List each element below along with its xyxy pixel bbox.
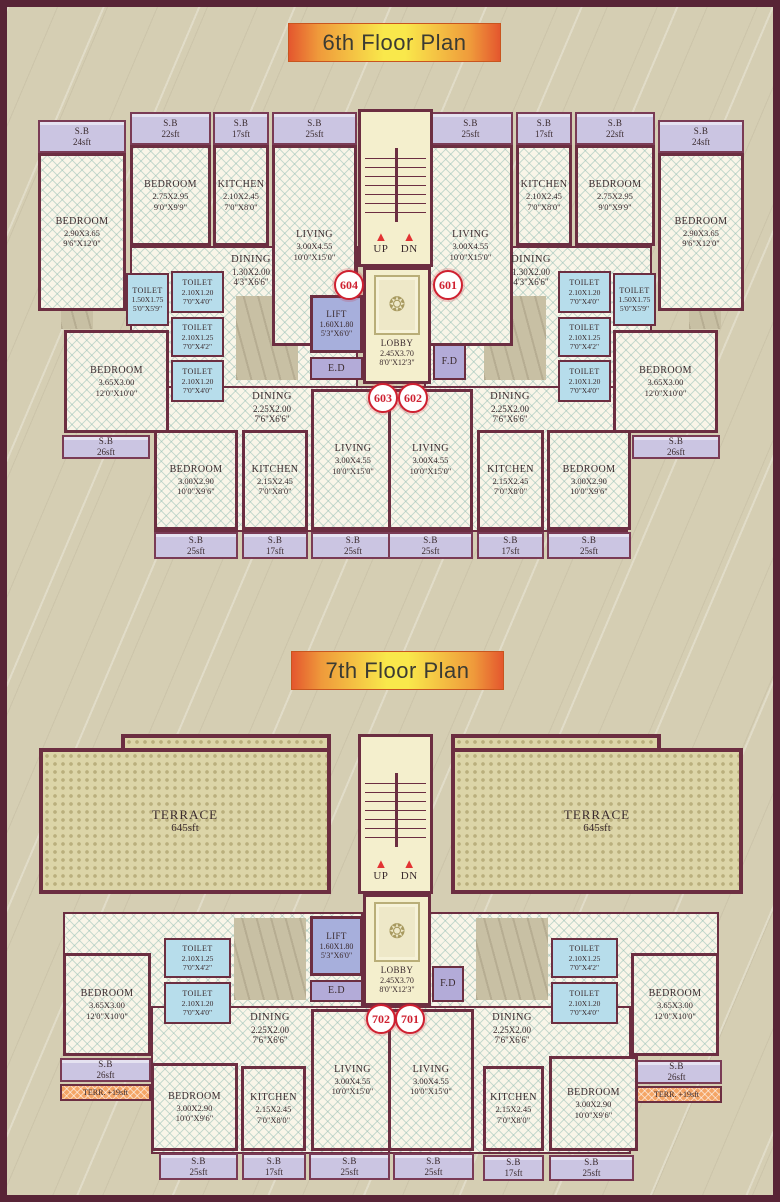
- label-25sft: 25sft: [425, 1167, 443, 1178]
- label-7-6-x6-6: 7'6"X6'6": [494, 1035, 529, 1046]
- label-toilet: TOILET: [569, 944, 599, 954]
- label-3-65x3-00: 3.65X3.00: [89, 1000, 125, 1010]
- label-living: LIVING: [412, 443, 449, 455]
- label-9-0-x9-9: 9'0"X9'9": [154, 202, 187, 212]
- label-7-0-x8-0: 7'0"X8'0": [258, 486, 291, 496]
- sb-s-b: S.B24sft: [38, 120, 126, 153]
- txt-dining: DINING2.25X2.007'6"X6'6": [230, 1006, 310, 1052]
- label-bedroom: BEDROOM: [567, 1087, 620, 1099]
- sb-s-b: S.B26sft: [62, 435, 150, 459]
- label-2-10x1-20: 2.10X1.20: [569, 377, 601, 386]
- label-s-b: S.B: [189, 535, 203, 546]
- label-terr-19sft: TERR. +19sft: [83, 1088, 128, 1098]
- room-bedroom: BEDROOM2.75X2.959'0"X9'9": [575, 145, 655, 246]
- label-toilet: TOILET: [132, 286, 162, 296]
- label-25sft: 25sft: [341, 1167, 359, 1178]
- label-s-b: S.B: [582, 535, 596, 546]
- label-25sft: 25sft: [306, 129, 324, 140]
- label-toilet: TOILET: [182, 278, 212, 288]
- label-bedroom: BEDROOM: [589, 179, 642, 191]
- label-10-0-x9-6: 10'0"X9'6": [570, 486, 607, 496]
- label-7-0-x8-0: 7'0"X8'0": [497, 1115, 530, 1125]
- label-12-0-x10-0: 12'0"X10'0": [96, 388, 138, 398]
- label-7-0-x4-2: 7'0"X4'2": [570, 342, 599, 351]
- label-2-25x2-00: 2.25X2.00: [253, 404, 291, 415]
- label-10-0-x9-6: 10'0"X9'6": [575, 1110, 612, 1120]
- label-25sft: 25sft: [422, 546, 440, 557]
- label-26sft: 26sft: [97, 447, 115, 458]
- stair-dn-label: DN: [401, 870, 418, 883]
- label-17sft: 17sft: [502, 546, 520, 557]
- label-2-25x2-00: 2.25X2.00: [491, 404, 529, 415]
- room-bedroom: BEDROOM3.65X3.0012'0"X10'0": [63, 953, 151, 1056]
- floor-plan-sheet: { "colors":{ "wall":"#6c2e41","backgroun…: [0, 0, 780, 1202]
- label-10-0-x15-0: 10'0"X15'0": [332, 1086, 374, 1096]
- label-17sft: 17sft: [535, 129, 553, 140]
- label-dining: DINING: [490, 391, 530, 404]
- sb-s-b: S.B22sft: [130, 112, 211, 145]
- toilet-toilet: TOILET1.50X1.755'0"X5'9": [126, 273, 169, 326]
- label-10-0-x15-0: 10'0"X15'0": [294, 252, 336, 262]
- room-bedroom: BEDROOM3.00X2.9010'0"X9'6": [547, 430, 631, 530]
- lift-lift: LIFT1.60X1.805'3"X6'0": [310, 295, 363, 353]
- label-e-d: E.D: [328, 363, 345, 375]
- label-9-6-x12-0: 9'6"X12'0": [63, 238, 100, 248]
- sb-s-b: S.B17sft: [516, 112, 572, 145]
- label-living: LIVING: [335, 443, 372, 455]
- sb-s-b: S.B25sft: [388, 532, 473, 559]
- label-s-b: S.B: [99, 436, 113, 447]
- label-s-b: S.B: [608, 118, 622, 129]
- label-22sft: 22sft: [162, 129, 180, 140]
- label-1-50x1-75: 1.50X1.75: [619, 295, 651, 304]
- room-kitchen: KITCHEN2.15X2.457'0"X8'0": [242, 430, 308, 530]
- lobby-rug: ❂: [374, 275, 420, 335]
- medallion-icon: ❂: [389, 922, 406, 942]
- label-2-15x2-45: 2.15X2.45: [496, 1104, 532, 1114]
- label-24sft: 24sft: [73, 137, 91, 148]
- label-3-00x4-55: 3.00X4.55: [297, 241, 333, 251]
- label-toilet: TOILET: [182, 367, 212, 377]
- label-7-6-x6-6: 7'6"X6'6": [254, 414, 289, 425]
- ed-e-d: E.D: [310, 980, 363, 1002]
- sb-s-b: S.B17sft: [477, 532, 544, 559]
- label-2-10x2-45: 2.10X2.45: [223, 191, 259, 201]
- label-s-b: S.B: [163, 118, 177, 129]
- label-10-0-x15-0: 10'0"X15'0": [410, 1086, 452, 1096]
- unit-number-604: 604: [334, 270, 364, 300]
- label-bedroom: BEDROOM: [563, 464, 616, 476]
- label-7-0-x4-2: 7'0"X4'2": [183, 963, 212, 972]
- toilet-toilet: TOILET2.10X1.207'0"X4'0": [551, 982, 618, 1024]
- label-3-00x2-90: 3.00X2.90: [178, 476, 214, 486]
- label-s-b: S.B: [669, 1061, 683, 1072]
- label-terrace: TERRACE: [564, 807, 630, 823]
- label-7-0-x4-0: 7'0"X4'0": [570, 386, 599, 395]
- label-s-b: S.B: [669, 436, 683, 447]
- toilet-toilet: TOILET2.10X1.207'0"X4'0": [164, 982, 231, 1024]
- label-5-0-x5-9: 5'0"X5'9": [133, 304, 162, 313]
- passage: [476, 918, 548, 1000]
- room-bedroom: BEDROOM3.65X3.0012'0"X10'0": [613, 330, 718, 433]
- room-kitchen: KITCHEN2.15X2.457'0"X8'0": [241, 1066, 306, 1151]
- room-kitchen: KITCHEN2.10X2.457'0"X8'0": [516, 145, 572, 246]
- stair-dn-label: DN: [401, 243, 418, 256]
- label-26sft: 26sft: [668, 1072, 686, 1083]
- label-3-00x2-90: 3.00X2.90: [571, 476, 607, 486]
- label-3-00x4-55: 3.00X4.55: [335, 455, 371, 465]
- label-dining: DINING: [511, 254, 551, 267]
- label-10-0-x15-0: 10'0"X15'0": [332, 466, 374, 476]
- label-lobby: LOBBY: [381, 965, 414, 976]
- sb-s-b: S.B25sft: [547, 532, 631, 559]
- toilet-toilet: TOILET2.10X1.207'0"X4'0": [558, 271, 611, 313]
- toilet-toilet: TOILET2.10X1.257'0"X4'2": [164, 938, 231, 978]
- floor7-title-banner: 7th Floor Plan: [291, 651, 504, 690]
- label-s-b: S.B: [346, 535, 360, 546]
- label-3-65x3-00: 3.65X3.00: [657, 1000, 693, 1010]
- label-7-0-x8-0: 7'0"X8'0": [527, 202, 560, 212]
- toilet-toilet: TOILET2.10X1.257'0"X4'2": [551, 938, 618, 978]
- unit-number-701: 701: [395, 1004, 425, 1034]
- label-bedroom: BEDROOM: [675, 216, 728, 228]
- label-3-00x4-55: 3.00X4.55: [413, 455, 449, 465]
- sb-s-b: S.B26sft: [60, 1058, 151, 1082]
- label-toilet: TOILET: [182, 323, 212, 333]
- label-living: LIVING: [296, 229, 333, 241]
- label-7-0-x4-0: 7'0"X4'0": [570, 1008, 599, 1017]
- label-3-00x4-55: 3.00X4.55: [335, 1076, 371, 1086]
- label-bedroom: BEDROOM: [56, 216, 109, 228]
- label-26sft: 26sft: [667, 447, 685, 458]
- label-7-0-x4-0: 7'0"X4'0": [570, 297, 599, 306]
- sb-s-b: S.B25sft: [272, 112, 357, 145]
- label-s-b: S.B: [191, 1156, 205, 1167]
- stair-up-label: UP: [373, 870, 388, 883]
- toilet-toilet: TOILET2.10X1.257'0"X4'2": [171, 317, 224, 357]
- label-1-30x2-00: 1.30X2.00: [232, 267, 270, 278]
- lobby-lobby: ❂LOBBY2.45X3.708'0"X12'3": [363, 894, 431, 1006]
- label-toilet: TOILET: [619, 286, 649, 296]
- label-toilet: TOILET: [569, 989, 599, 999]
- label-22sft: 22sft: [606, 129, 624, 140]
- stair-dn-indicator: ▲DN: [401, 230, 418, 256]
- label-bedroom: BEDROOM: [81, 988, 134, 1000]
- room-kitchen: KITCHEN2.10X2.457'0"X8'0": [213, 145, 269, 246]
- label-4-3-x6-6: 4'3"X6'6": [233, 277, 268, 288]
- label-17sft: 17sft: [266, 546, 284, 557]
- sb-s-b: S.B25sft: [393, 1153, 474, 1180]
- stair-direction-labels: ▲UP▲DN: [361, 857, 430, 883]
- label-s-b: S.B: [423, 535, 437, 546]
- label-12-0-x10-0: 12'0"X10'0": [645, 388, 687, 398]
- label-7-0-x4-0: 7'0"X4'0": [183, 1008, 212, 1017]
- sb-s-b: S.B25sft: [309, 1153, 390, 1180]
- up-arrow-icon: ▲: [374, 230, 387, 243]
- label-bedroom: BEDROOM: [168, 1091, 221, 1103]
- label-s-b: S.B: [506, 1157, 520, 1168]
- label-25sft: 25sft: [583, 1168, 601, 1179]
- label-living: LIVING: [413, 1064, 450, 1076]
- label-8-0-x12-3: 8'0"X12'3": [379, 985, 414, 995]
- label-s-b: S.B: [342, 1156, 356, 1167]
- label-bedroom: BEDROOM: [639, 365, 692, 377]
- label-5-3-x6-0: 5'3"X6'0": [321, 951, 352, 961]
- label-7-0-x8-0: 7'0"X8'0": [224, 202, 257, 212]
- label-2-25x2-00: 2.25X2.00: [493, 1025, 531, 1036]
- label-2-10x1-25: 2.10X1.25: [569, 333, 601, 342]
- toilet-toilet: TOILET2.10X1.207'0"X4'0": [558, 360, 611, 402]
- label-kitchen: KITCHEN: [218, 179, 265, 191]
- label-1-60x1-80: 1.60X1.80: [320, 942, 354, 952]
- label-dining: DINING: [231, 254, 271, 267]
- label-7-6-x6-6: 7'6"X6'6": [252, 1035, 287, 1046]
- label-645sft: 645sft: [171, 822, 199, 835]
- label-2-15x2-45: 2.15X2.45: [257, 476, 293, 486]
- label-1-60x1-80: 1.60X1.80: [320, 320, 354, 330]
- terrace-terrace: TERRACE645sft: [39, 748, 331, 894]
- label-2-10x1-20: 2.10X1.20: [182, 288, 214, 297]
- label-2-45x3-70: 2.45X3.70: [380, 976, 414, 986]
- label-lift: LIFT: [326, 931, 347, 942]
- unit-number-601: 601: [433, 270, 463, 300]
- label-1-30x2-00: 1.30X2.00: [512, 267, 550, 278]
- lift-lift: LIFT1.60X1.805'3"X6'0": [310, 916, 363, 976]
- room-bedroom: BEDROOM3.65X3.0012'0"X10'0": [64, 330, 169, 433]
- label-dining: DINING: [492, 1012, 532, 1025]
- sb-s-b: S.B25sft: [311, 532, 395, 559]
- lobby-lobby: ❂LOBBY2.45X3.708'0"X12'3": [363, 267, 431, 384]
- stair-dn-indicator: ▲DN: [401, 857, 418, 883]
- sb-s-b: S.B25sft: [154, 532, 238, 559]
- medallion-icon: ❂: [389, 295, 406, 315]
- stair-up-indicator: ▲UP: [373, 230, 388, 256]
- floor7-title: 7th Floor Plan: [326, 658, 470, 684]
- sb-s-b: S.B24sft: [658, 120, 744, 153]
- terrace-terrace: TERRACE645sft: [451, 748, 743, 894]
- txt-dining: DINING2.25X2.007'6"X6'6": [232, 384, 312, 432]
- label-2-45x3-70: 2.45X3.70: [380, 349, 414, 359]
- label-s-b: S.B: [426, 1156, 440, 1167]
- label-toilet: TOILET: [569, 278, 599, 288]
- label-25sft: 25sft: [344, 546, 362, 557]
- label-2-90x3-65: 2.90X3.65: [683, 228, 719, 238]
- label-kitchen: KITCHEN: [490, 1092, 537, 1104]
- passage: [234, 918, 306, 1000]
- label-17sft: 17sft: [232, 129, 250, 140]
- txt-dining: DINING2.25X2.007'6"X6'6": [470, 384, 550, 432]
- fd-f-d: F.D: [432, 966, 464, 1002]
- label-s-b: S.B: [584, 1157, 598, 1168]
- label-f-d: F.D: [440, 978, 456, 990]
- label-kitchen: KITCHEN: [250, 1092, 297, 1104]
- label-toilet: TOILET: [182, 989, 212, 999]
- label-3-65x3-00: 3.65X3.00: [99, 377, 135, 387]
- label-kitchen: KITCHEN: [252, 464, 299, 476]
- room-bedroom: BEDROOM2.90X3.659'6"X12'0": [658, 153, 744, 311]
- stair-up-label: UP: [373, 243, 388, 256]
- stair-direction-labels: ▲UP▲DN: [361, 230, 430, 256]
- label-3-00x2-90: 3.00X2.90: [576, 1099, 612, 1109]
- label-s-b: S.B: [537, 118, 551, 129]
- floor6-plan: S.B24sftS.B22sftS.B17sftS.B25sftS.B25sft…: [36, 106, 746, 566]
- sb-s-b: S.B22sft: [575, 112, 655, 145]
- label-2-10x1-20: 2.10X1.20: [569, 288, 601, 297]
- label-9-6-x12-0: 9'6"X12'0": [682, 238, 719, 248]
- label-24sft: 24sft: [692, 137, 710, 148]
- label-645sft: 645sft: [583, 822, 611, 835]
- label-10-0-x15-0: 10'0"X15'0": [410, 466, 452, 476]
- label-7-6-x6-6: 7'6"X6'6": [492, 414, 527, 425]
- label-2-75x2-95: 2.75X2.95: [153, 191, 189, 201]
- label-7-0-x4-2: 7'0"X4'2": [183, 342, 212, 351]
- toilet-toilet: TOILET2.10X1.207'0"X4'0": [171, 271, 224, 313]
- label-7-0-x4-2: 7'0"X4'2": [570, 963, 599, 972]
- up-arrow-icon: ▲: [374, 857, 387, 870]
- label-toilet: TOILET: [569, 367, 599, 377]
- room-living: LIVING3.00X4.5510'0"X15'0": [388, 389, 473, 530]
- label-2-25x2-00: 2.25X2.00: [251, 1025, 289, 1036]
- room-bedroom: BEDROOM3.00X2.9010'0"X9'6": [151, 1063, 238, 1151]
- label-kitchen: KITCHEN: [487, 464, 534, 476]
- toilet-toilet: TOILET2.10X1.207'0"X4'0": [171, 360, 224, 402]
- floor7-plan: TERRACE645sftTERRACE645sft▲UP▲DN❂LOBBY2.…: [36, 726, 746, 1186]
- label-e-d: E.D: [328, 985, 345, 997]
- label-3-00x4-55: 3.00X4.55: [413, 1076, 449, 1086]
- floor6-title: 6th Floor Plan: [323, 30, 467, 56]
- sb-s-b: S.B25sft: [549, 1155, 634, 1181]
- sb-s-b: S.B17sft: [483, 1155, 544, 1181]
- toilet-toilet: TOILET1.50X1.755'0"X5'9": [613, 273, 656, 326]
- label-2-10x1-25: 2.10X1.25: [569, 954, 601, 963]
- label-s-b: S.B: [268, 535, 282, 546]
- label-2-10x1-20: 2.10X1.20: [182, 999, 214, 1008]
- label-17sft: 17sft: [265, 1167, 283, 1178]
- label-s-b: S.B: [694, 126, 708, 137]
- terr-terr-19sft: TERR. +19sft: [631, 1086, 722, 1103]
- label-12-0-x10-0: 12'0"X10'0": [654, 1011, 696, 1021]
- label-terr-19sft: TERR. +19sft: [654, 1090, 699, 1100]
- room-bedroom: BEDROOM3.00X2.9010'0"X9'6": [154, 430, 238, 530]
- label-2-15x2-45: 2.15X2.45: [256, 1104, 292, 1114]
- sb-s-b: S.B17sft: [242, 1153, 306, 1180]
- label-9-0-x9-9: 9'0"X9'9": [598, 202, 631, 212]
- unit-number-602: 602: [398, 383, 428, 413]
- label-s-b: S.B: [234, 118, 248, 129]
- stair-up: ▲UP▲DN: [358, 734, 433, 894]
- label-4-3-x6-6: 4'3"X6'6": [513, 277, 548, 288]
- ed-e-d: E.D: [310, 357, 363, 380]
- label-7-0-x8-0: 7'0"X8'0": [494, 486, 527, 496]
- label-2-10x1-25: 2.10X1.25: [182, 333, 214, 342]
- label-7-0-x4-0: 7'0"X4'0": [183, 297, 212, 306]
- room-bedroom: BEDROOM3.65X3.0012'0"X10'0": [631, 953, 719, 1056]
- label-s-b: S.B: [307, 118, 321, 129]
- label-kitchen: KITCHEN: [521, 179, 568, 191]
- label-2-10x1-20: 2.10X1.20: [182, 377, 214, 386]
- stair-up: ▲UP▲DN: [358, 109, 433, 267]
- stair-divider: [395, 148, 398, 222]
- lobby-rug: ❂: [374, 902, 420, 962]
- unit-number-702: 702: [366, 1004, 396, 1034]
- label-2-10x2-45: 2.10X2.45: [526, 191, 562, 201]
- label-s-b: S.B: [503, 535, 517, 546]
- room-kitchen: KITCHEN2.15X2.457'0"X8'0": [483, 1066, 544, 1151]
- label-f-d: F.D: [442, 356, 458, 368]
- label-25sft: 25sft: [187, 546, 205, 557]
- room-living: LIVING3.00X4.5510'0"X15'0": [428, 145, 513, 346]
- stair-up-indicator: ▲UP: [373, 857, 388, 883]
- label-25sft: 25sft: [462, 129, 480, 140]
- label-25sft: 25sft: [580, 546, 598, 557]
- label-10-0-x9-6: 10'0"X9'6": [177, 486, 214, 496]
- terr-terr-19sft: TERR. +19sft: [60, 1084, 151, 1101]
- label-2-15x2-45: 2.15X2.45: [493, 476, 529, 486]
- room-kitchen: KITCHEN2.15X2.457'0"X8'0": [477, 430, 544, 530]
- label-2-75x2-95: 2.75X2.95: [597, 191, 633, 201]
- label-bedroom: BEDROOM: [170, 464, 223, 476]
- sb-s-b: S.B26sft: [632, 435, 720, 459]
- label-26sft: 26sft: [97, 1070, 115, 1081]
- sb-s-b: S.B17sft: [242, 532, 308, 559]
- stair-divider: [395, 773, 398, 847]
- toilet-toilet: TOILET2.10X1.257'0"X4'2": [558, 317, 611, 357]
- floor6-title-banner: 6th Floor Plan: [288, 23, 501, 62]
- label-terrace: TERRACE: [152, 807, 218, 823]
- label-25sft: 25sft: [190, 1167, 208, 1178]
- label-toilet: TOILET: [182, 944, 212, 954]
- sb-s-b: S.B25sft: [159, 1153, 238, 1180]
- label-living: LIVING: [452, 229, 489, 241]
- label-lobby: LOBBY: [381, 338, 414, 349]
- label-12-0-x10-0: 12'0"X10'0": [86, 1011, 128, 1021]
- room-bedroom: BEDROOM2.75X2.959'0"X9'9": [130, 145, 211, 246]
- room-bedroom: BEDROOM2.90X3.659'6"X12'0": [38, 153, 126, 311]
- label-s-b: S.B: [75, 126, 89, 137]
- label-dining: DINING: [252, 391, 292, 404]
- label-3-00x2-90: 3.00X2.90: [177, 1103, 213, 1113]
- label-s-b: S.B: [267, 1156, 281, 1167]
- label-lift: LIFT: [326, 309, 347, 320]
- label-3-65x3-00: 3.65X3.00: [648, 377, 684, 387]
- down-arrow-icon: ▲: [403, 857, 416, 870]
- label-17sft: 17sft: [505, 1168, 523, 1179]
- label-1-50x1-75: 1.50X1.75: [132, 295, 164, 304]
- txt-dining: DINING2.25X2.007'6"X6'6": [472, 1006, 552, 1052]
- label-bedroom: BEDROOM: [90, 365, 143, 377]
- label-s-b: S.B: [463, 118, 477, 129]
- label-2-10x1-20: 2.10X1.20: [569, 999, 601, 1008]
- label-8-0-x12-3: 8'0"X12'3": [379, 358, 414, 368]
- label-toilet: TOILET: [569, 323, 599, 333]
- label-bedroom: BEDROOM: [649, 988, 702, 1000]
- sb-s-b: S.B26sft: [631, 1060, 722, 1084]
- label-7-0-x4-0: 7'0"X4'0": [183, 386, 212, 395]
- label-5-3-x6-0: 5'3"X6'0": [321, 329, 352, 339]
- sb-s-b: S.B25sft: [428, 112, 513, 145]
- label-2-90x3-65: 2.90X3.65: [64, 228, 100, 238]
- label-5-0-x5-9: 5'0"X5'9": [620, 304, 649, 313]
- label-bedroom: BEDROOM: [144, 179, 197, 191]
- label-dining: DINING: [250, 1012, 290, 1025]
- label-living: LIVING: [334, 1064, 371, 1076]
- label-s-b: S.B: [98, 1059, 112, 1070]
- down-arrow-icon: ▲: [403, 230, 416, 243]
- unit-number-603: 603: [368, 383, 398, 413]
- label-7-0-x8-0: 7'0"X8'0": [257, 1115, 290, 1125]
- label-2-10x1-25: 2.10X1.25: [182, 954, 214, 963]
- fd-f-d: F.D: [433, 344, 466, 380]
